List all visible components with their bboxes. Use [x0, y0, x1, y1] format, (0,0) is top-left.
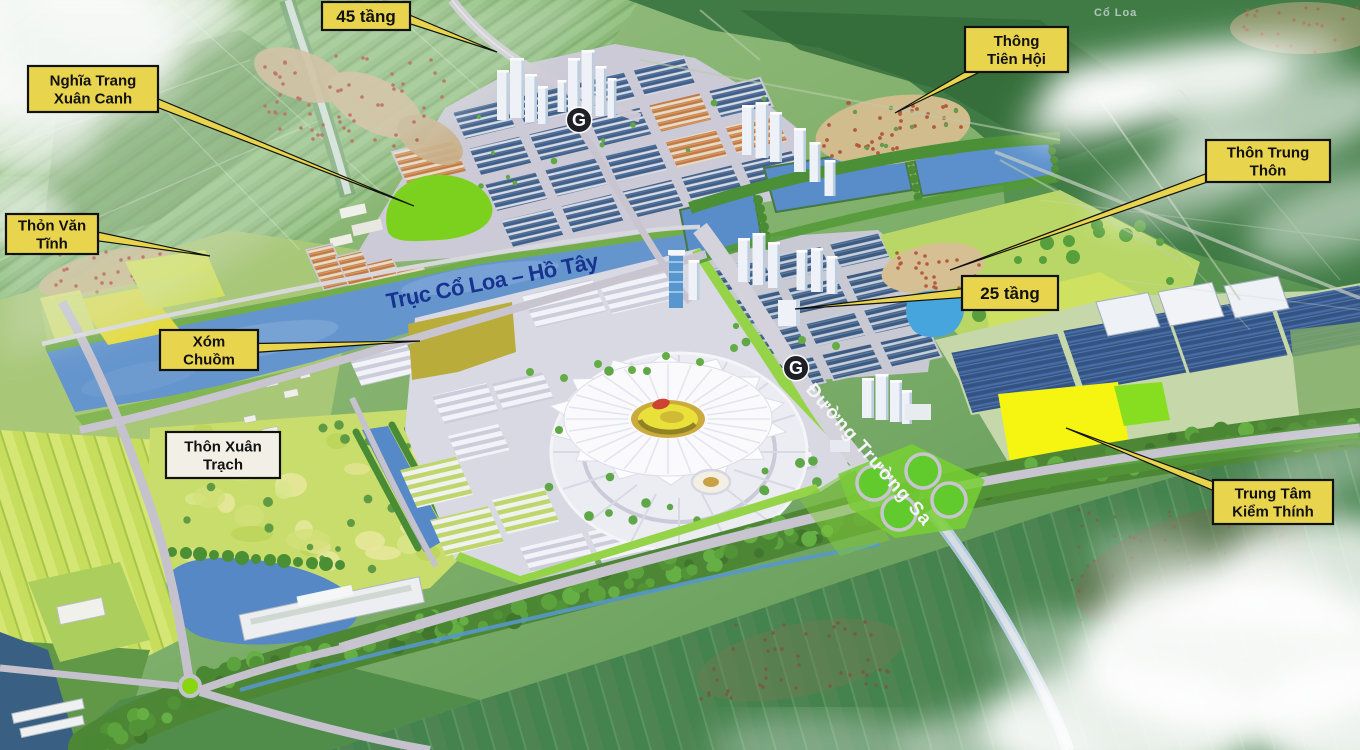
svg-text:Xuân Canh: Xuân Canh [54, 90, 132, 107]
svg-text:Thôn Xuân: Thôn Xuân [184, 438, 262, 455]
svg-text:Nghĩa Trang: Nghĩa Trang [50, 72, 137, 89]
svg-text:45 tầng: 45 tầng [336, 7, 396, 26]
svg-text:Tĩnh: Tĩnh [36, 235, 68, 252]
svg-text:25 tầng: 25 tầng [980, 284, 1040, 303]
svg-text:Thôn: Thôn [1250, 162, 1287, 179]
svg-text:Thôn Trung: Thôn Trung [1227, 144, 1309, 161]
svg-text:Thông: Thông [994, 33, 1040, 50]
svg-text:Tiên Hội: Tiên Hội [987, 51, 1046, 68]
svg-text:Kiểm Thính: Kiểm Thính [1232, 503, 1314, 520]
svg-text:Thỏn Văn: Thỏn Văn [18, 217, 86, 234]
svg-text:Xóm: Xóm [193, 333, 226, 350]
svg-text:Cổ Loa: Cổ Loa [1094, 7, 1137, 19]
svg-text:Chuồm: Chuồm [183, 351, 235, 368]
svg-text:Trung Tâm: Trung Tâm [1235, 485, 1312, 502]
svg-text:Trạch: Trạch [203, 456, 243, 473]
